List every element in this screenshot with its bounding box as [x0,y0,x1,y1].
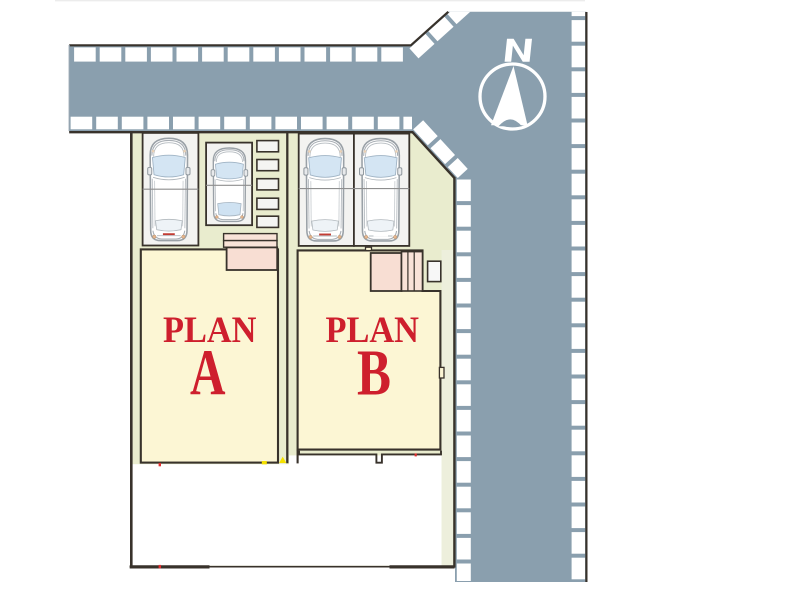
svg-text:B: B [357,338,391,410]
svg-text:A: A [190,338,226,410]
